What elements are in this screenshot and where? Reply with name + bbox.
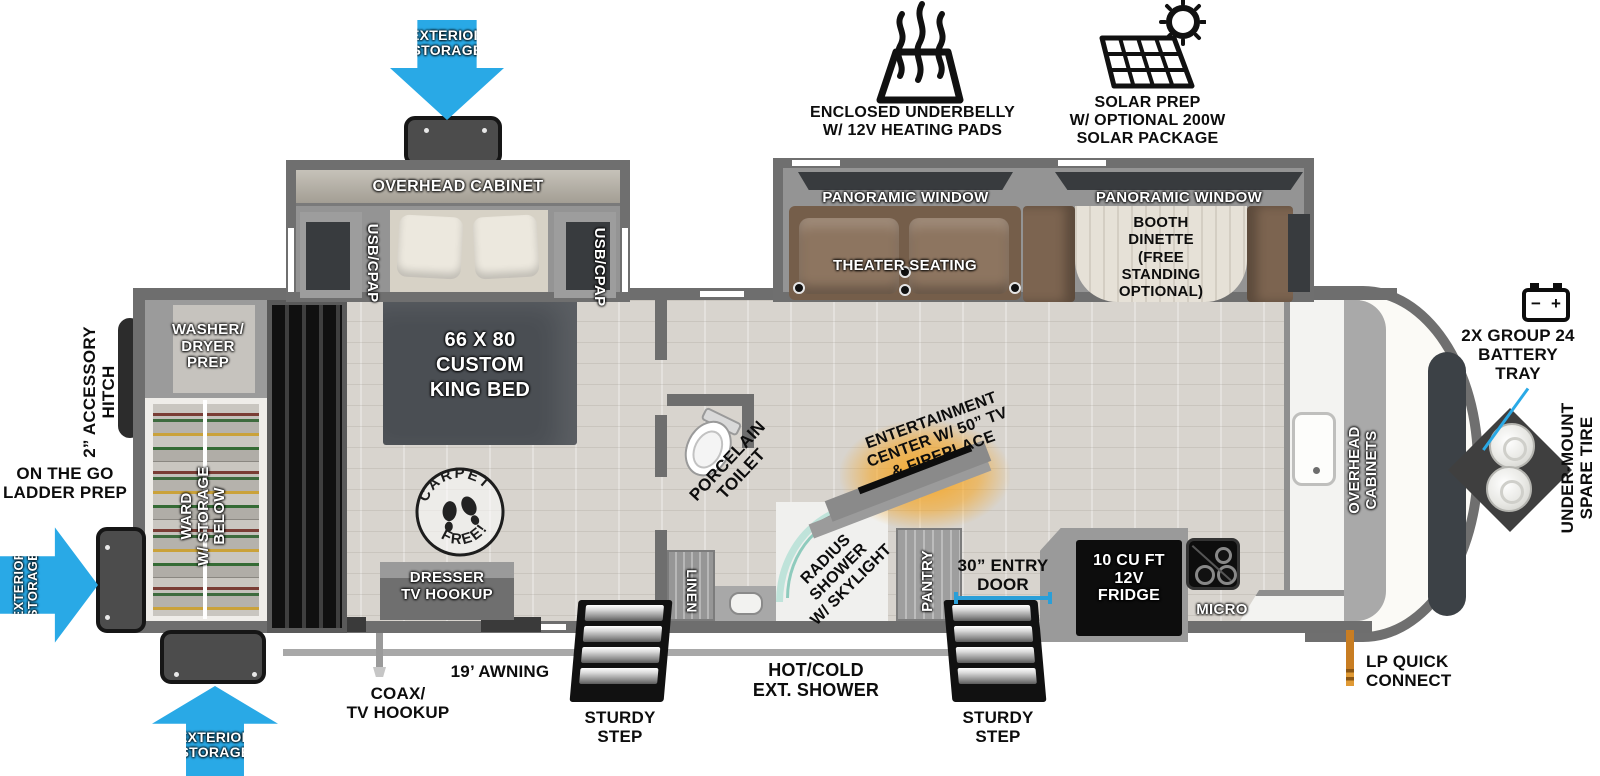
entry-steps-left [570, 600, 673, 702]
bedroom-window-left [306, 222, 350, 290]
coax-plug-icon [376, 633, 383, 671]
window-slit-top [700, 291, 744, 297]
usb-cpap-right-label: USB/CPAP [589, 212, 607, 322]
exterior-storage-compartment-left [96, 527, 146, 633]
battery-tray-label: 2X GROUP 24BATTERYTRAY [1438, 326, 1598, 383]
panoramic-window-left-glass [798, 172, 1013, 190]
bath-vanity [715, 586, 776, 621]
carpet-free-stamp: CARPET FREE! [403, 455, 517, 569]
slide-window-slit [622, 228, 628, 292]
bed-headboard [390, 210, 548, 292]
entry-steps-right [944, 600, 1047, 702]
living-slide: PANORAMIC WINDOW PANORAMIC WINDOW THEATE… [773, 158, 1314, 302]
accessory-hitch-label: 2” ACCESSORYHITCH [80, 297, 122, 487]
battery-icon: − + [1522, 288, 1570, 322]
exterior-storage-compartment-rear [160, 630, 266, 684]
theater-seat [909, 218, 1009, 294]
ext-shower-label: HOT/COLDEXT. SHOWER [726, 660, 906, 700]
cupholder [1009, 282, 1021, 294]
slide-window-slit [288, 228, 294, 292]
slatted-closet [267, 300, 347, 633]
solar-prep-icon [1086, 0, 1206, 98]
front-cap-shadow [1428, 352, 1466, 616]
cupholder [899, 284, 911, 296]
panoramic-window-right-label: PANORAMIC WINDOW [1055, 190, 1303, 207]
sturdy-step-right-label: STURDYSTEP [950, 708, 1046, 746]
toilet-room-wall [667, 394, 754, 406]
awning-label: 19’ AWNING [440, 662, 560, 681]
pillow [472, 214, 539, 279]
bedroom-slide: OVERHEAD CABINET [286, 160, 630, 302]
pantry-label: PANTRY [920, 536, 938, 626]
exterior-storage-arrow-up: EXTERIORSTORAGE [152, 686, 278, 776]
bath-wall [655, 300, 667, 360]
floorplan-canvas: WASHER/DRYERPREP WARDW/ STORAGEBELOW OVE… [0, 0, 1600, 776]
exterior-storage-arrow-down: EXTERIORSTORAGE [390, 20, 504, 120]
exterior-storage-arrow-label: EXTERIORSTORAGE [12, 530, 42, 640]
kitchen-sink-icon [1292, 412, 1336, 486]
underbelly-label: ENCLOSED UNDERBELLYW/ 12V HEATING PADS [790, 104, 1035, 140]
entry-door-label: 30” ENTRYDOOR [956, 556, 1050, 594]
heating-pads-icon [856, 0, 968, 108]
slide-window-slit [1058, 160, 1106, 166]
solar-prep-label: SOLAR PREPW/ OPTIONAL 200WSOLAR PACKAGE [1060, 94, 1235, 148]
dresser-label: DRESSERTV HOOKUP [380, 570, 514, 603]
exterior-storage-arrow-label: EXTERIORSTORAGE [390, 28, 504, 59]
exterior-storage-arrow-label: EXTERIORSTORAGE [152, 730, 278, 761]
dinette-label: BOOTHDINETTE(FREE STANDINGOPTIONAL) [1075, 214, 1247, 300]
king-bed-label: 66 X 80CUSTOMKING BED [383, 328, 577, 403]
bath-wall [655, 415, 667, 477]
dinette-bench-right [1247, 206, 1293, 302]
propane-tank-icon [1486, 466, 1532, 512]
panoramic-window-left-label: PANORAMIC WINDOW [798, 190, 1013, 207]
spare-tire-label: UNDER-MOUNTSPARE TIRE [1558, 383, 1598, 553]
sturdy-step-left-label: STURDYSTEP [572, 708, 668, 746]
lp-quick-connect-icon [1346, 630, 1354, 686]
wall-top-front [1305, 288, 1397, 300]
battery-plus: + [1551, 294, 1561, 314]
slide-window-slit [792, 160, 840, 166]
battery-minus: − [1531, 294, 1541, 314]
ladder-prep-label: ON THE GOLADDER PREP [0, 464, 130, 502]
overhead-cabinets-label: OVERHEADCABINETS [1347, 415, 1383, 525]
usb-cpap-left-label: USB/CPAP [362, 208, 380, 318]
cupholder [793, 282, 805, 294]
stove-icon [1186, 538, 1240, 590]
exterior-storage-arrow-right: EXTERIORSTORAGE [0, 525, 98, 645]
micro-label: MICRO [1186, 602, 1258, 619]
wardrobe-label: WARDW/ STORAGEBELOW [179, 416, 233, 616]
overhead-cabinet-label: OVERHEAD CABINET [296, 178, 620, 196]
exterior-storage-compartment-top [404, 116, 502, 166]
coax-label: COAX/TV HOOKUP [330, 684, 466, 722]
lp-label: LP QUICKCONNECT [1366, 652, 1476, 690]
theater-seating-label: THEATER SEATING [789, 258, 1021, 275]
entry-door-measure-line [956, 596, 1050, 600]
pillow [396, 214, 463, 279]
washer-dryer-label: WASHER/DRYERPREP [150, 322, 266, 372]
theater-seat [799, 218, 899, 294]
wall-top-rear [133, 288, 295, 300]
fridge-label: 10 CU FT12VFRIDGE [1076, 552, 1182, 605]
living-end-window [1288, 214, 1310, 292]
dinette-bench-left [1023, 206, 1075, 302]
theater-seating [789, 206, 1021, 300]
linen-label: LINEN [683, 556, 699, 626]
bath-sink-icon [729, 592, 763, 615]
panoramic-window-right-glass [1055, 172, 1303, 190]
nightstand-left [300, 212, 362, 298]
